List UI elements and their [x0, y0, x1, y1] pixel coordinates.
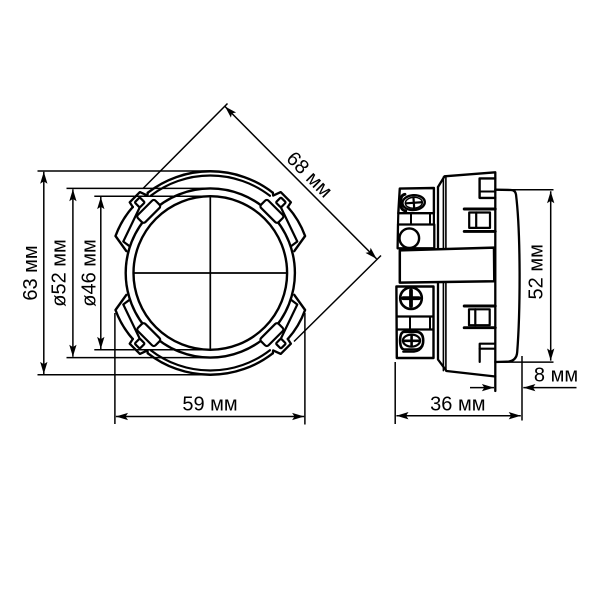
svg-text:8 мм: 8 мм [534, 364, 578, 386]
svg-text:ø52 мм: ø52 мм [49, 239, 71, 307]
svg-text:ø46 мм: ø46 мм [78, 239, 100, 307]
svg-text:63 мм: 63 мм [20, 245, 42, 300]
svg-text:52 мм: 52 мм [526, 244, 548, 299]
svg-text:59 мм: 59 мм [182, 393, 237, 415]
svg-text:36 мм: 36 мм [430, 393, 485, 415]
